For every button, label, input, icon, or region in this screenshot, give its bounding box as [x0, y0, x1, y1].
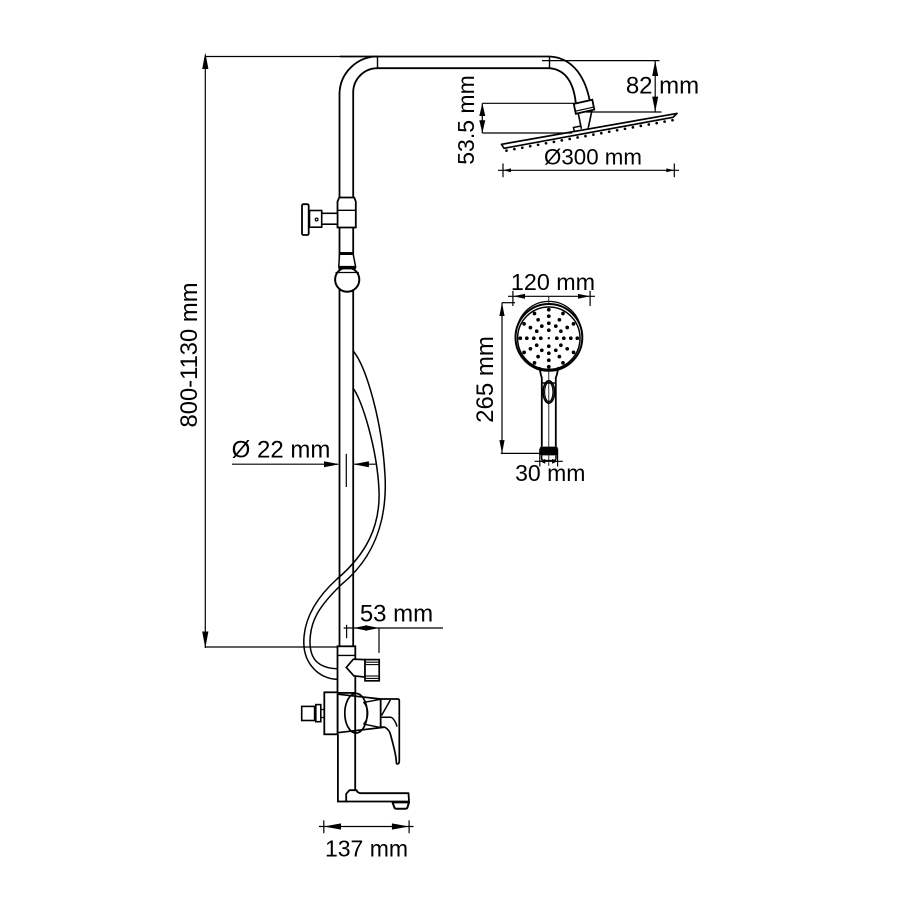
- svg-text:Ø 22 mm: Ø 22 mm: [232, 436, 331, 463]
- svg-text:82 mm: 82 mm: [626, 73, 699, 100]
- svg-text:120 mm: 120 mm: [511, 269, 595, 295]
- svg-text:30 mm: 30 mm: [515, 460, 585, 486]
- svg-text:53 mm: 53 mm: [360, 601, 433, 628]
- svg-text:800-1130 mm: 800-1130 mm: [176, 282, 203, 427]
- svg-text:137 mm: 137 mm: [325, 836, 408, 862]
- svg-text:Ø300 mm: Ø300 mm: [544, 145, 642, 170]
- svg-text:265 mm: 265 mm: [472, 336, 499, 423]
- svg-text:53.5 mm: 53.5 mm: [453, 75, 479, 164]
